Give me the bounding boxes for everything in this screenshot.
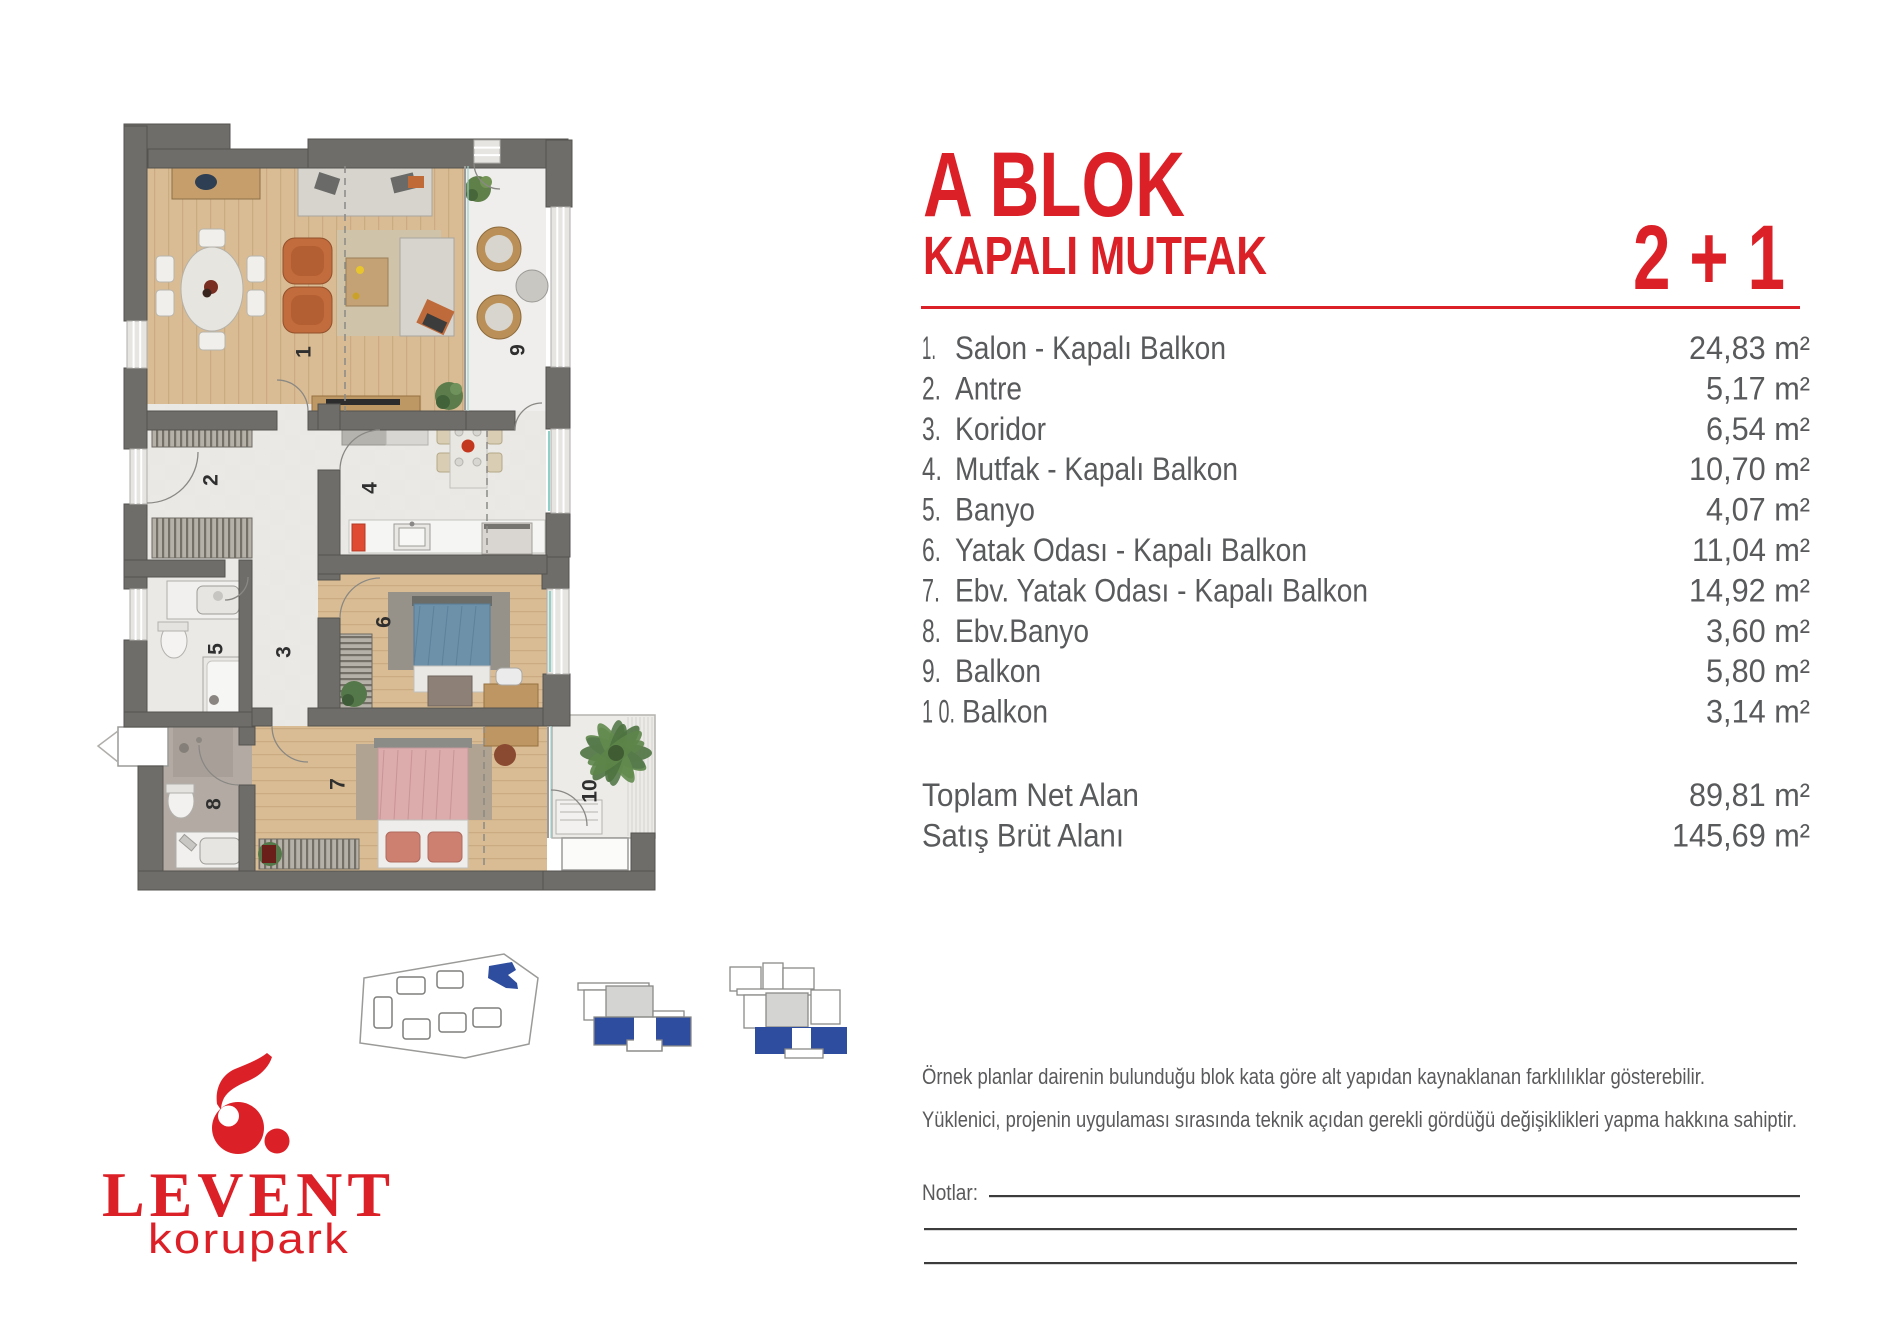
svg-text:2 + 1: 2 + 1	[1633, 207, 1785, 309]
svg-text:Koridor: Koridor	[955, 411, 1046, 447]
svg-text:5,80 m²: 5,80 m²	[1706, 653, 1810, 689]
svg-text:Banyo: Banyo	[955, 492, 1035, 528]
svg-text:1 0.: 1 0.	[922, 694, 955, 730]
svg-text:3: 3	[273, 646, 296, 658]
svg-text:5.: 5.	[922, 492, 941, 528]
svg-text:4,07 m²: 4,07 m²	[1706, 492, 1810, 528]
svg-text:Notlar:: Notlar:	[922, 1180, 978, 1205]
svg-text:89,81 m²: 89,81 m²	[1689, 777, 1810, 813]
svg-text:korupark: korupark	[148, 1215, 350, 1262]
svg-text:6,54 m²: 6,54 m²	[1706, 411, 1810, 447]
svg-text:11,04 m²: 11,04 m²	[1692, 532, 1810, 568]
svg-text:4.: 4.	[922, 451, 942, 487]
svg-text:9: 9	[507, 344, 530, 356]
svg-text:Toplam Net Alan: Toplam Net Alan	[922, 777, 1139, 813]
svg-text:2: 2	[200, 474, 223, 486]
svg-text:Antre: Antre	[955, 370, 1022, 406]
svg-text:Balkon: Balkon	[962, 694, 1048, 730]
svg-text:Yatak Odası - Kapalı Balkon: Yatak Odası - Kapalı Balkon	[955, 532, 1307, 568]
svg-text:2.: 2.	[922, 370, 941, 406]
svg-text:8.: 8.	[922, 613, 941, 649]
svg-text:7: 7	[327, 778, 350, 790]
svg-text:Mutfak - Kapalı Balkon: Mutfak - Kapalı Balkon	[955, 451, 1238, 487]
svg-text:8: 8	[203, 798, 226, 810]
svg-text:1.: 1.	[922, 330, 936, 366]
svg-text:4: 4	[359, 482, 382, 494]
svg-text:5: 5	[205, 643, 228, 655]
svg-text:Yüklenici, projenin uygulaması: Yüklenici, projenin uygulaması sırasında…	[922, 1107, 1797, 1132]
svg-text:10: 10	[579, 779, 602, 802]
svg-text:3,60 m²: 3,60 m²	[1706, 613, 1810, 649]
svg-text:3,14 m²: 3,14 m²	[1706, 694, 1810, 730]
svg-text:9.: 9.	[922, 653, 941, 689]
svg-text:Ebv.Banyo: Ebv.Banyo	[955, 613, 1089, 649]
svg-text:5,17 m²: 5,17 m²	[1706, 370, 1810, 406]
svg-text:24,83 m²: 24,83 m²	[1689, 330, 1810, 366]
svg-text:6: 6	[373, 616, 396, 628]
svg-text:3.: 3.	[922, 411, 941, 447]
svg-text:A BLOK: A BLOK	[923, 134, 1185, 236]
svg-text:10,70 m²: 10,70 m²	[1689, 451, 1810, 487]
svg-text:6.: 6.	[922, 532, 941, 568]
svg-text:145,69 m²: 145,69 m²	[1672, 818, 1810, 854]
svg-text:7.: 7.	[922, 572, 940, 608]
svg-text:KAPALI MUTFAK: KAPALI MUTFAK	[923, 226, 1267, 286]
svg-text:Salon - Kapalı Balkon: Salon - Kapalı Balkon	[955, 330, 1226, 366]
svg-text:Örnek planlar dairenin bulundu: Örnek planlar dairenin bulunduğu blok ka…	[922, 1064, 1705, 1089]
svg-text:Satış Brüt Alanı: Satış Brüt Alanı	[922, 818, 1124, 854]
svg-text:Ebv. Yatak Odası - Kapalı Balk: Ebv. Yatak Odası - Kapalı Balkon	[955, 572, 1368, 608]
svg-text:Balkon: Balkon	[955, 653, 1041, 689]
svg-text:1: 1	[293, 346, 316, 358]
svg-text:14,92 m²: 14,92 m²	[1689, 572, 1810, 608]
